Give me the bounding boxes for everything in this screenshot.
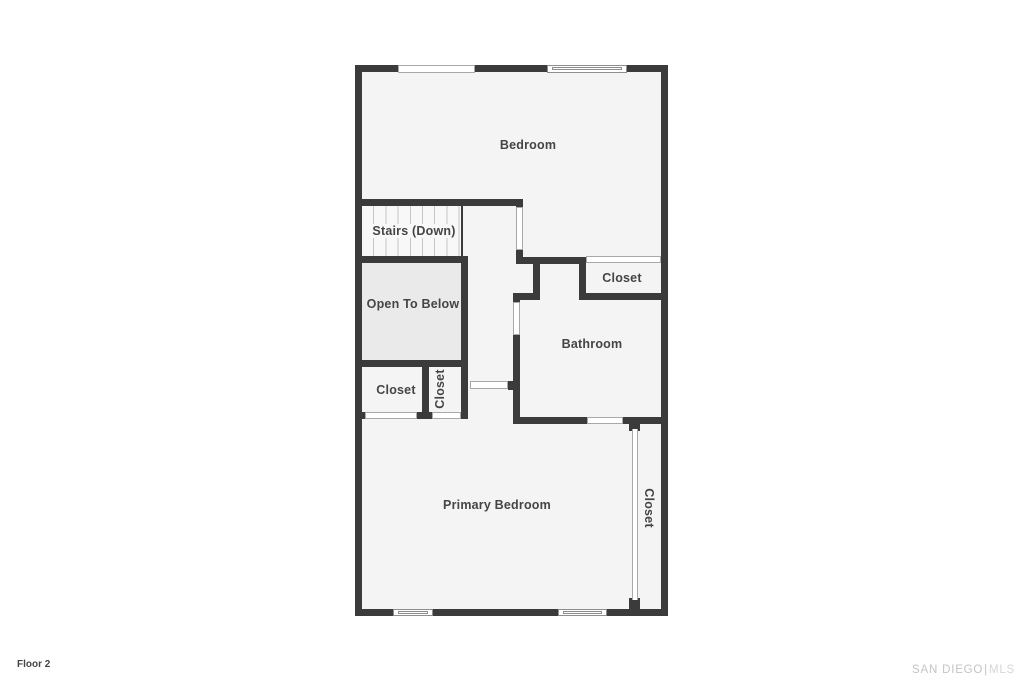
room-label-open-to-below: Open To Below — [367, 297, 460, 311]
room-label-primary-bedroom: Primary Bedroom — [443, 498, 551, 512]
window-bedroom-top — [547, 65, 627, 73]
room-label-closet-right: Closet — [642, 488, 656, 527]
mls-watermark: SAN DIEGO|MLS — [912, 664, 1015, 676]
floor-number-label: Floor 2 — [17, 659, 50, 670]
door-closet-middle — [432, 412, 461, 419]
door-primary-bedroom — [470, 381, 508, 389]
room-label-closet-middle: Closet — [433, 369, 447, 408]
wall-closet-divider — [422, 360, 429, 419]
room-open-to-below — [362, 263, 461, 360]
watermark-brand: SAN DIEGO — [912, 664, 983, 676]
room-label-closet-top-right: Closet — [602, 271, 641, 285]
stairs-edge-line — [461, 206, 463, 256]
door-bathroom — [513, 302, 520, 335]
window-pane — [563, 611, 602, 614]
room-label-stairs-down: Stairs (Down) — [369, 224, 458, 238]
wall-bedroom-south — [516, 257, 586, 264]
wall-stairs-bottom — [355, 256, 468, 263]
door-closet-left — [365, 412, 417, 419]
room-label-closet-left: Closet — [376, 383, 415, 397]
window-primary-bottom-right — [558, 609, 607, 616]
window-pane — [398, 611, 428, 614]
closet-sliding-divider — [632, 429, 638, 600]
floorplan-canvas: Bedroom Stairs (Down) Open To Below Clos… — [0, 0, 1024, 683]
window-primary-bottom-left — [393, 609, 433, 616]
room-label-bedroom: Bedroom — [500, 138, 556, 152]
wall-open-to-below-right — [461, 256, 468, 419]
watermark-suffix: MLS — [989, 664, 1015, 676]
door-bathroom-south — [587, 417, 623, 424]
window-pane — [552, 67, 622, 70]
wall-closet-stub-bottom — [629, 598, 640, 612]
opening-top-wall — [398, 65, 475, 73]
watermark-divider: | — [984, 664, 988, 676]
wall-bedroom-stairs — [355, 199, 523, 206]
wall-open-to-below-bottom — [355, 360, 468, 367]
wall-closet-tr-south — [579, 293, 668, 300]
wall-hall-door-stub — [508, 381, 520, 390]
door-bedroom — [516, 207, 523, 250]
window-closet-top-right — [586, 256, 661, 263]
room-label-bathroom: Bathroom — [562, 337, 623, 351]
